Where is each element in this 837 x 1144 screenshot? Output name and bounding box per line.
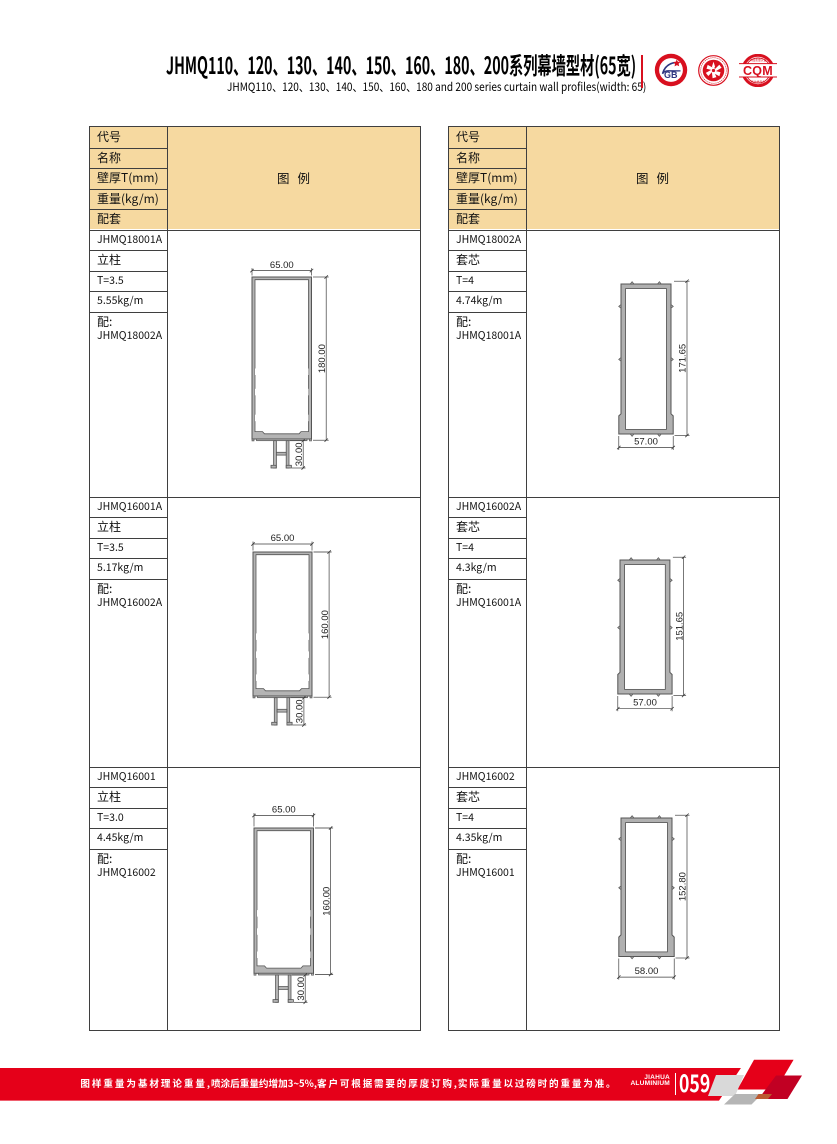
- svg-text:65.00: 65.00: [272, 804, 296, 815]
- svg-text:57.00: 57.00: [634, 436, 658, 447]
- svg-text:30.00: 30.00: [296, 977, 307, 1001]
- svg-text:160.00: 160.00: [319, 610, 330, 639]
- svg-text:151.65: 151.65: [674, 611, 685, 640]
- svg-text:152.80: 152.80: [677, 872, 688, 901]
- svg-text:57.00: 57.00: [633, 697, 657, 708]
- svg-text:58.00: 58.00: [634, 965, 658, 976]
- svg-text:171.65: 171.65: [677, 343, 688, 372]
- svg-text:65.00: 65.00: [270, 260, 294, 271]
- svg-text:30.00: 30.00: [294, 442, 305, 466]
- svg-text:中国质量认证: 中国质量认证: [750, 58, 767, 62]
- svg-text:咨询委员会: 咨询委员会: [751, 80, 765, 84]
- svg-text:160.00: 160.00: [321, 886, 332, 915]
- svg-text:180.00: 180.00: [317, 344, 328, 373]
- svg-text:GB: GB: [664, 70, 678, 80]
- svg-text:65.00: 65.00: [270, 533, 294, 544]
- svg-text:30.00: 30.00: [294, 699, 305, 723]
- svg-text:CQM: CQM: [743, 63, 773, 77]
